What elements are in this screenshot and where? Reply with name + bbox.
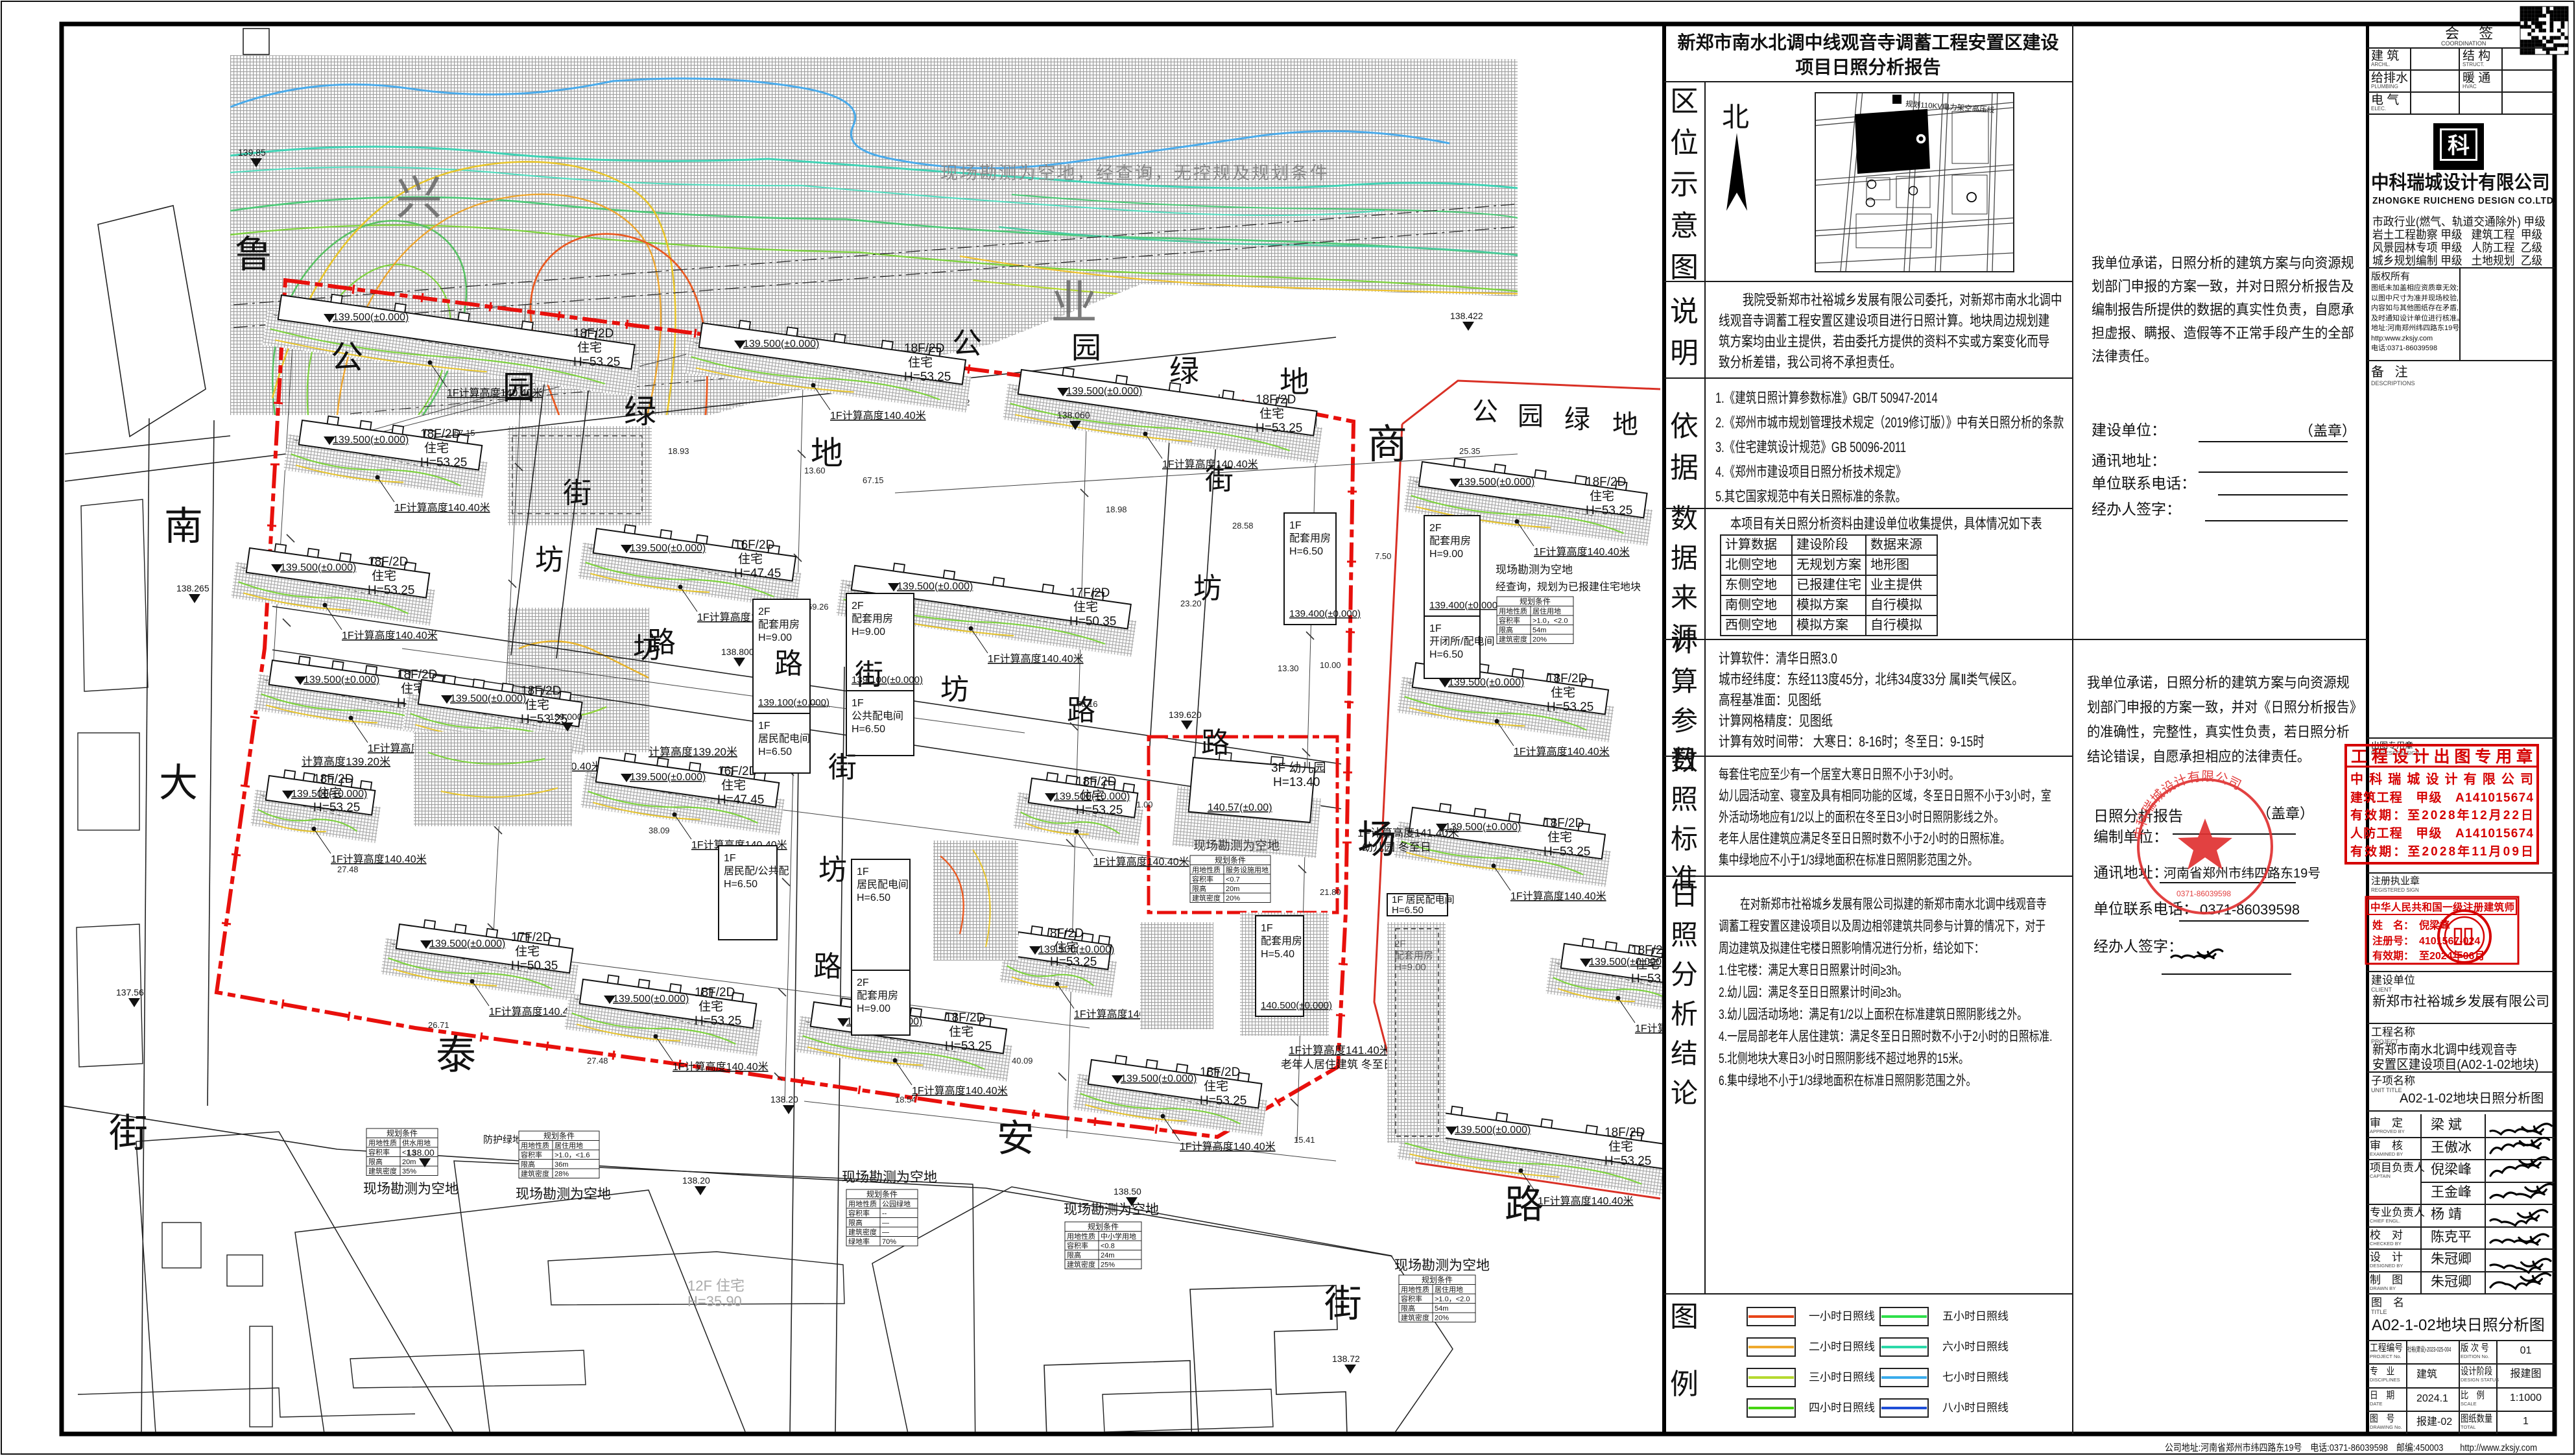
svg-text:建筑工程 甲级 A141015674: 建筑工程 甲级 A141015674 — [2350, 790, 2533, 805]
svg-text:工程设计出图专用章: 工程设计出图专用章 — [2351, 747, 2533, 766]
svg-text:中华人民共和国一级注册建筑师: 中华人民共和国一级注册建筑师 — [2370, 901, 2514, 913]
svg-text:注册号： 4101567-024: 注册号： 4101567-024 — [2372, 935, 2480, 947]
svg-text:中科瑞城设计有限公司: 中科瑞城设计有限公司 — [2132, 769, 2243, 841]
svg-text:人防工程 甲级 A141015674: 人防工程 甲级 A141015674 — [2350, 826, 2533, 841]
svg-text:0371-86039598: 0371-86039598 — [2176, 889, 2231, 898]
